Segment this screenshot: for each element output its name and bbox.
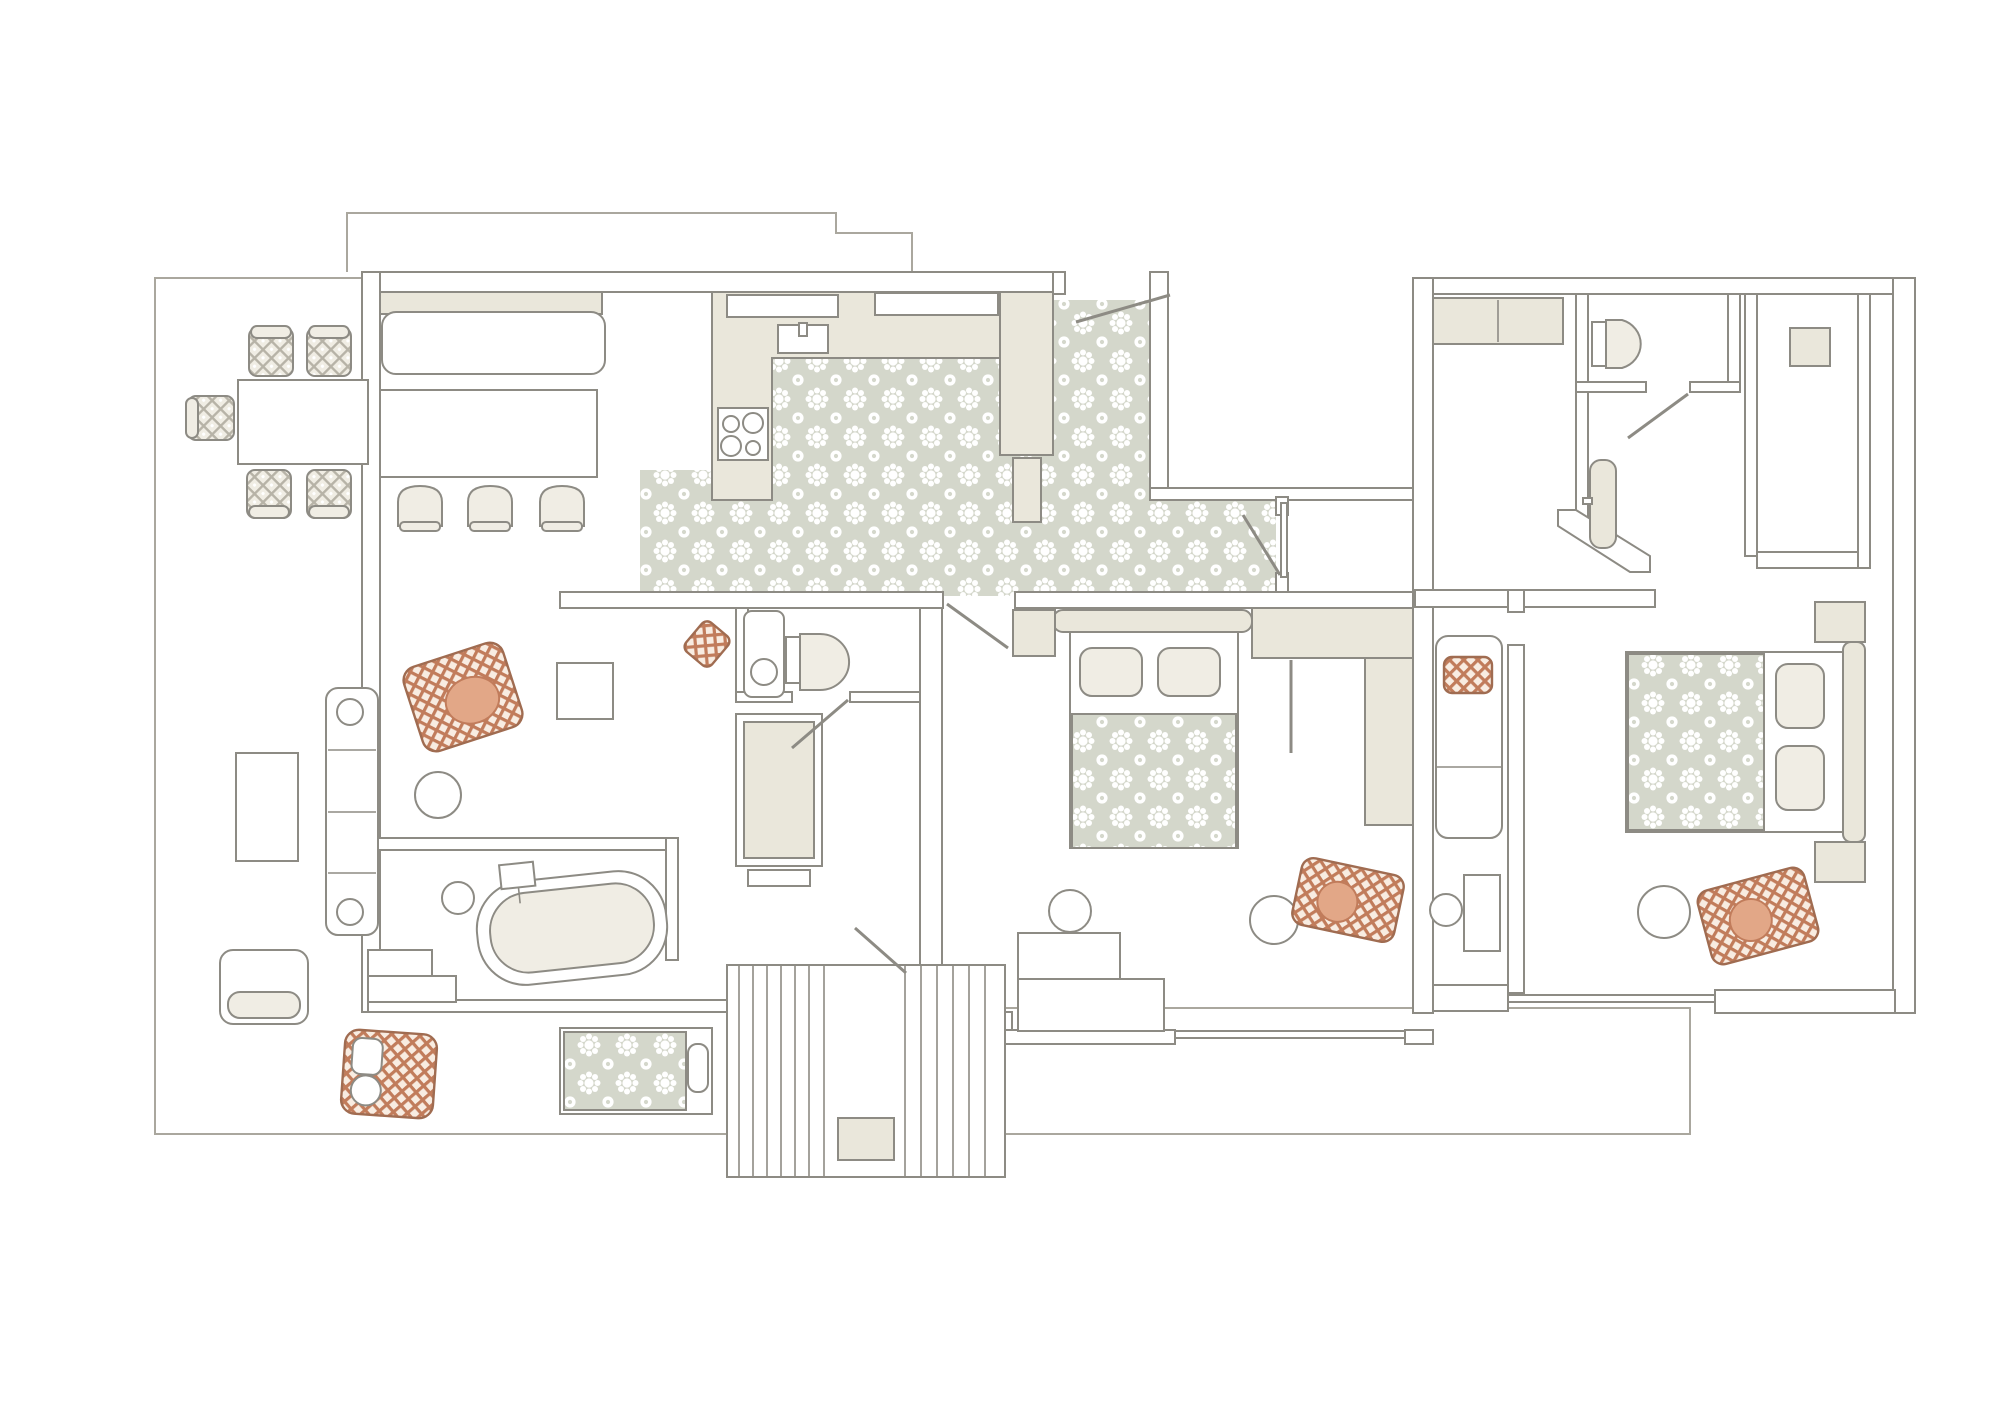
tiled-daybed (560, 1028, 712, 1114)
dining-chair (186, 396, 234, 440)
wall-bedroom2-left-stub (1508, 590, 1524, 612)
wall-mid-west (560, 592, 943, 608)
cooktop-4-burners (718, 408, 768, 460)
desk-step-b (1018, 979, 1164, 1031)
dining-chair (247, 470, 291, 518)
wc (744, 611, 849, 697)
kitchen-sink (778, 323, 828, 353)
lounger (220, 950, 308, 1024)
round-pouf (1638, 886, 1690, 938)
right-wing-top (1433, 298, 1830, 548)
wall-bedroom1-bottom-e (1405, 1030, 1433, 1044)
wall-hall-top-door-cap (1053, 272, 1065, 294)
wall-cabinet-square (1790, 328, 1830, 366)
window-bench-back (380, 292, 602, 314)
dining-chair (249, 326, 293, 376)
closet-top (1252, 608, 1413, 658)
wall-bedroom2-bottom-w (1433, 985, 1508, 1011)
headboard (1843, 642, 1865, 842)
wall-bedroom2-left (1508, 645, 1524, 993)
window-bench-seat (382, 312, 605, 374)
bathroom-main (368, 848, 672, 1002)
tall-cabinet-fridge (1000, 292, 1053, 455)
toilet2-door-leaf (1628, 394, 1688, 438)
wall-toilet2-bottom-b (1690, 382, 1740, 392)
right-wing-hall (1430, 636, 1502, 951)
roof-outline (347, 213, 912, 272)
wall-bedroom1-bottom-w (1005, 1030, 1175, 1044)
wall-store-left (1745, 294, 1757, 556)
wall-bedroom1-right (1413, 590, 1433, 1013)
terrace-low-table (236, 753, 298, 861)
bar-stool (468, 486, 512, 531)
small-orange-mat (682, 619, 732, 670)
wall-bedroom1-left (920, 608, 942, 1012)
corner-steps (368, 950, 456, 1002)
wall-courtyard-left (1150, 272, 1168, 497)
nightstand (1013, 610, 1055, 656)
wall-mid-east (1015, 592, 1415, 608)
washbasin-cabinet (744, 611, 784, 697)
wall-right-left (1413, 278, 1433, 590)
upper-cabinet-a (727, 295, 838, 317)
living-area-rug (400, 639, 526, 755)
pillow (1776, 746, 1824, 810)
wall-bath-top (368, 838, 678, 850)
bedroom-middle (1013, 608, 1413, 1031)
dining-chair (307, 326, 351, 376)
bedroom-right (1626, 602, 1865, 967)
wall-right-top (1413, 278, 1915, 294)
orange-rug-with-seat (1695, 865, 1821, 967)
bedroom1-door-leaf (947, 604, 1008, 648)
lower-deck (340, 1028, 712, 1119)
freestanding-bathtub (470, 848, 672, 989)
orange-rug-with-seat (1290, 856, 1406, 944)
desk-step-a (1018, 933, 1120, 979)
wall-store-bottom (1757, 552, 1867, 568)
bedroom2-sliding-door (1508, 995, 1715, 1002)
pillow (1080, 648, 1142, 696)
bar-stool (540, 486, 584, 531)
doormat (1444, 657, 1492, 693)
hall-cabinet (1436, 636, 1502, 838)
dining-bar (380, 292, 605, 531)
floor-plan-page (0, 0, 1999, 1414)
side-table (557, 663, 613, 719)
rattan-daybed (340, 1029, 438, 1119)
headboard (1053, 610, 1252, 632)
wall-toilet2-right (1728, 294, 1740, 392)
patterned-blanket (1072, 714, 1236, 848)
wall-bedroom2-top (1415, 590, 1655, 607)
bar-table (380, 390, 597, 477)
wall-toilet2-left (1576, 294, 1588, 392)
wall-top-main (362, 272, 1063, 292)
wall-right-outer-east (1893, 278, 1915, 1013)
hall-desk (1464, 875, 1500, 951)
pillow (1776, 664, 1824, 728)
outdoor-sofa (326, 688, 378, 935)
pillow (1158, 648, 1220, 696)
wall-courtyard-bottom (1150, 488, 1433, 500)
exterior-stairs (727, 965, 1005, 1177)
wall-bath-right (666, 838, 678, 960)
wall-bedroom2-bottom-e (1715, 990, 1895, 1013)
wall-wc-bottom-b (850, 692, 922, 702)
floor-plan-canvas (0, 0, 1999, 1414)
wall-toilet2-bottom-a (1576, 382, 1646, 392)
bar-stool (398, 486, 442, 531)
toilet-small (1592, 320, 1641, 368)
patterned-blanket (1628, 654, 1764, 830)
stairs-doormat (838, 1118, 894, 1160)
corridor-closet (736, 714, 822, 886)
upper-cabinet-b (875, 293, 998, 315)
bedroom1-sliding-door (1175, 1031, 1405, 1038)
hall-desk-chair (1430, 894, 1462, 926)
closet-side (1365, 658, 1413, 825)
round-pouf (1250, 896, 1298, 944)
bath-stool (442, 882, 474, 914)
dining-table (238, 380, 368, 464)
nightstand-top (1815, 602, 1865, 642)
nightstand-bottom (1815, 842, 1865, 882)
toilet (786, 634, 849, 690)
pantry-strip (1013, 458, 1041, 522)
wall-store-right-inner (1858, 294, 1870, 568)
round-pouf (415, 772, 461, 818)
closet-shelf (748, 870, 810, 886)
desk-chair (1049, 890, 1091, 932)
dining-chair (307, 470, 351, 518)
